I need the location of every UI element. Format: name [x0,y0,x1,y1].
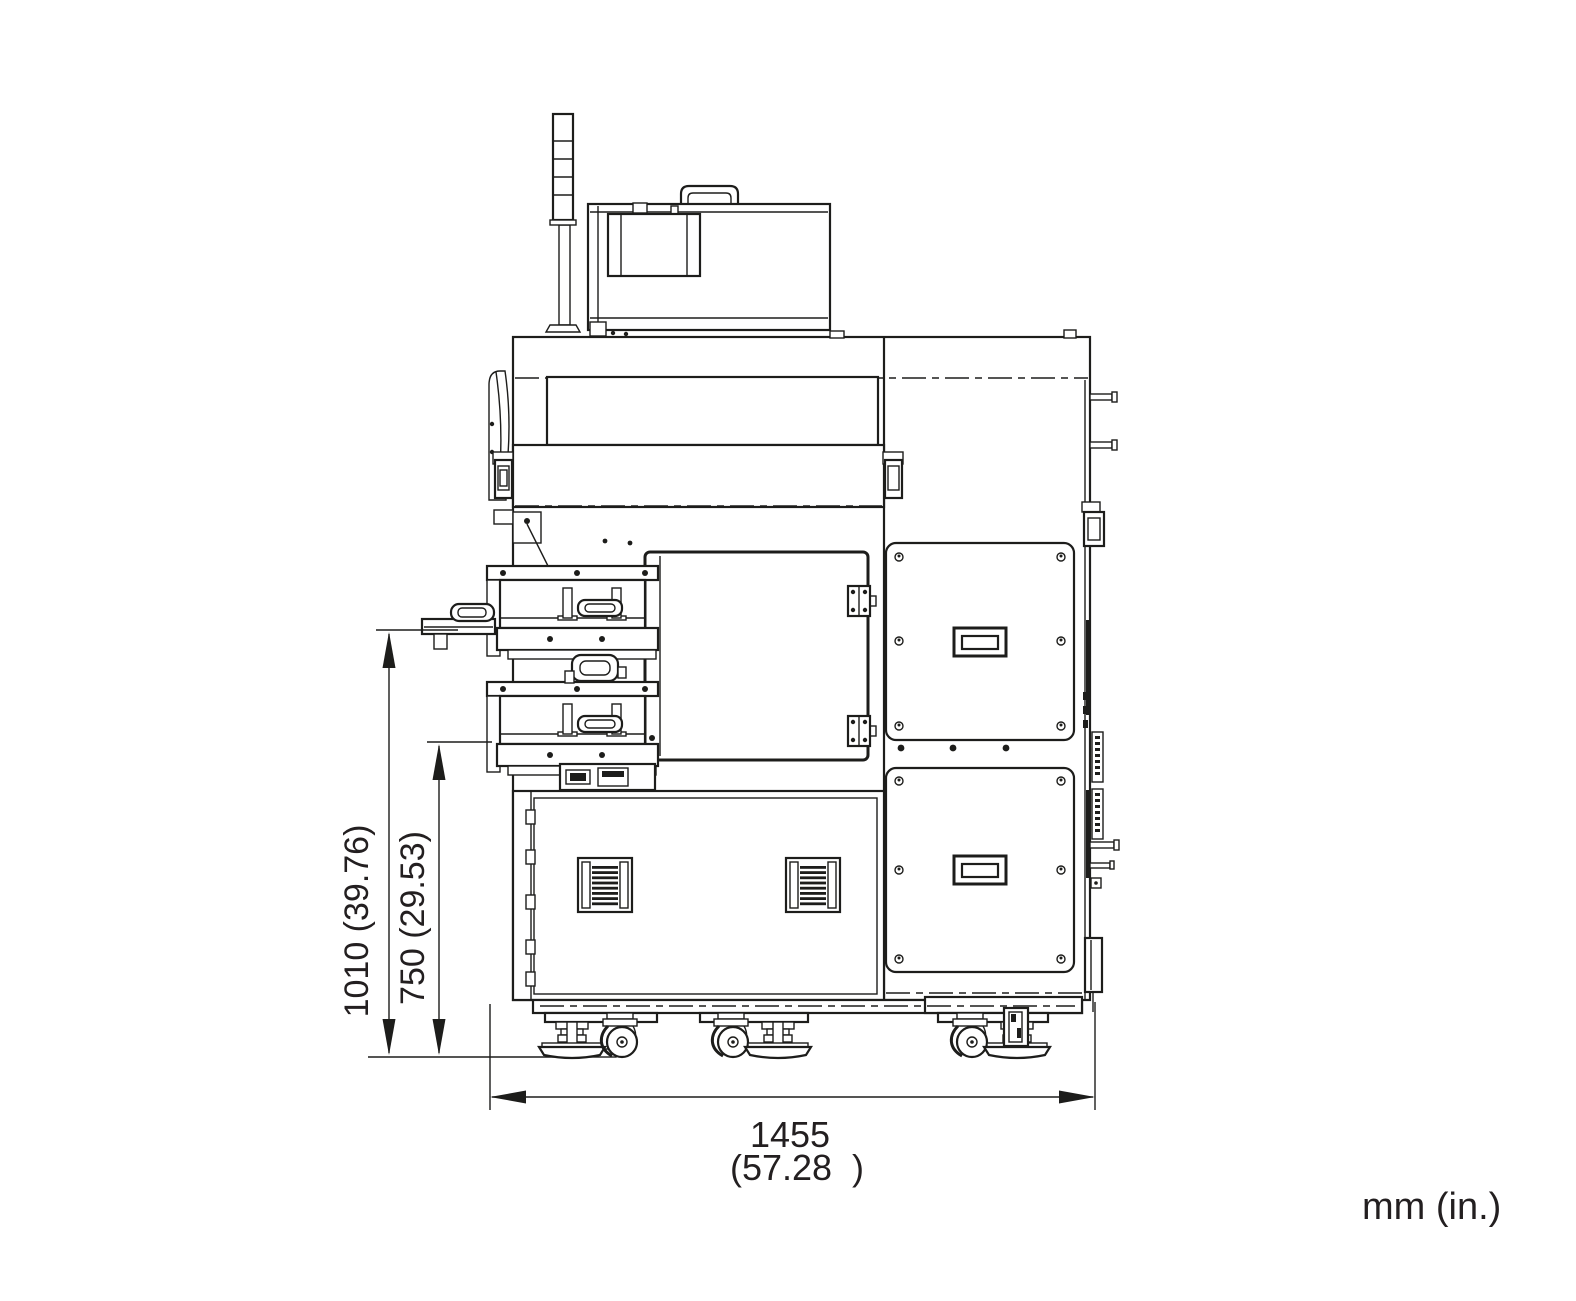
dim-label-1010: 1010 (39.76) [338,825,376,1018]
units-label: mm (in.) [1362,1186,1501,1228]
left-arm-bracket [422,604,495,649]
dimension-height-platform: 750 (29.53) [394,742,492,1055]
terminal-strip-upper [1092,732,1103,782]
leveling-foot-center [745,1022,811,1058]
top-control-unit [588,186,830,330]
dim-label-5728: (57.28 ) [730,1147,864,1188]
dim-label-750: 750 (29.53) [394,831,432,1005]
signal-tower [546,114,580,332]
caster-right [951,1013,987,1057]
caster-center [712,1013,748,1057]
right-latch [883,452,903,498]
foot-brake-bracket [1004,1008,1028,1046]
caster-left [601,1013,637,1057]
machine-front-view [368,114,1119,1058]
access-door[interactable] [645,552,876,760]
tray-module-upper [487,566,658,659]
monitor-panel [608,214,700,276]
machine-dimension-drawing: 1010 (39.76) 750 (29.53) 1455 (57.28 ) m… [0,0,1576,1301]
terminal-strip-lower [1092,789,1103,839]
connector-block [560,764,655,790]
left-curved-cover [489,371,513,524]
side-panel-upper[interactable] [886,543,1074,740]
tray-module-lower [487,682,658,775]
leveling-foot-left [539,1022,605,1058]
side-panel-lower[interactable] [886,768,1074,972]
drawing-canvas: 1010 (39.76) 750 (29.53) 1455 (57.28 ) m… [0,0,1576,1301]
left-latch [493,452,513,498]
lower-front-panel [513,791,884,1000]
louver-vent-right [786,858,840,912]
louver-vent-left [578,858,632,912]
